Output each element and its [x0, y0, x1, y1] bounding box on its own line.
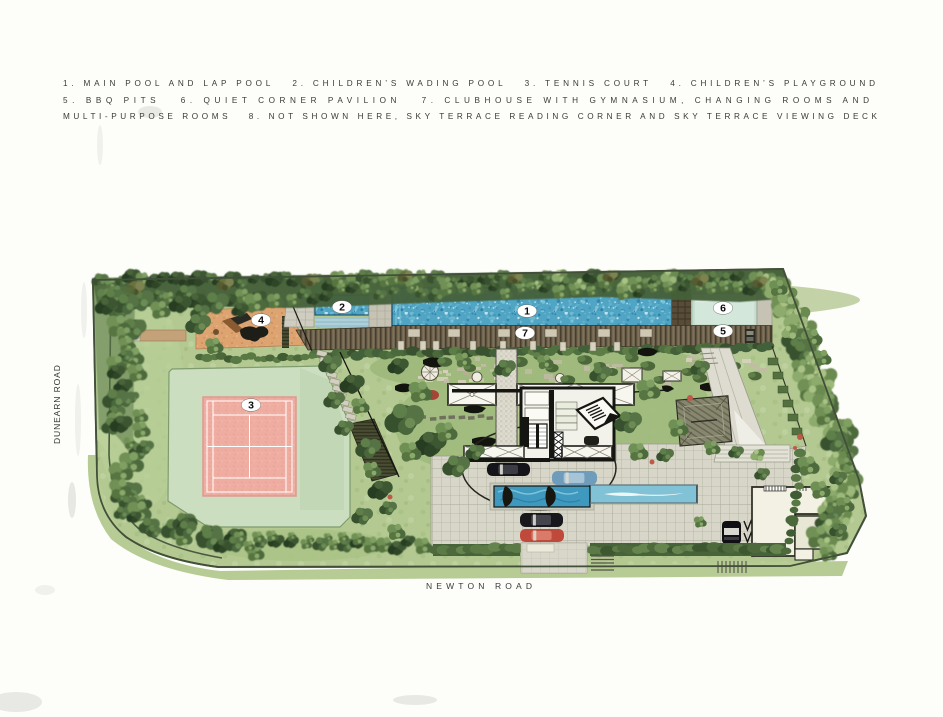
- svg-text:5. BBQ PITS 6. QUIET CORNER: 5. BBQ PITS 6. QUIET CORNER PAVILION 7. …: [63, 96, 869, 105]
- svg-text:5: 5: [720, 326, 726, 338]
- svg-text:1: 1: [524, 306, 530, 318]
- svg-text:NEWTON ROAD: NEWTON ROAD: [426, 581, 532, 591]
- svg-text:3: 3: [248, 400, 254, 412]
- svg-text:6: 6: [720, 303, 726, 315]
- svg-text:7: 7: [522, 328, 528, 340]
- svg-text:DUNEARN ROAD: DUNEARN ROAD: [52, 364, 62, 444]
- svg-text:4: 4: [258, 315, 264, 327]
- svg-text:MULTI-PURPOSE ROOMS 8. NOT S: MULTI-PURPOSE ROOMS 8. NOT SHOWN HERE, S…: [63, 112, 878, 121]
- svg-text:2: 2: [339, 302, 345, 314]
